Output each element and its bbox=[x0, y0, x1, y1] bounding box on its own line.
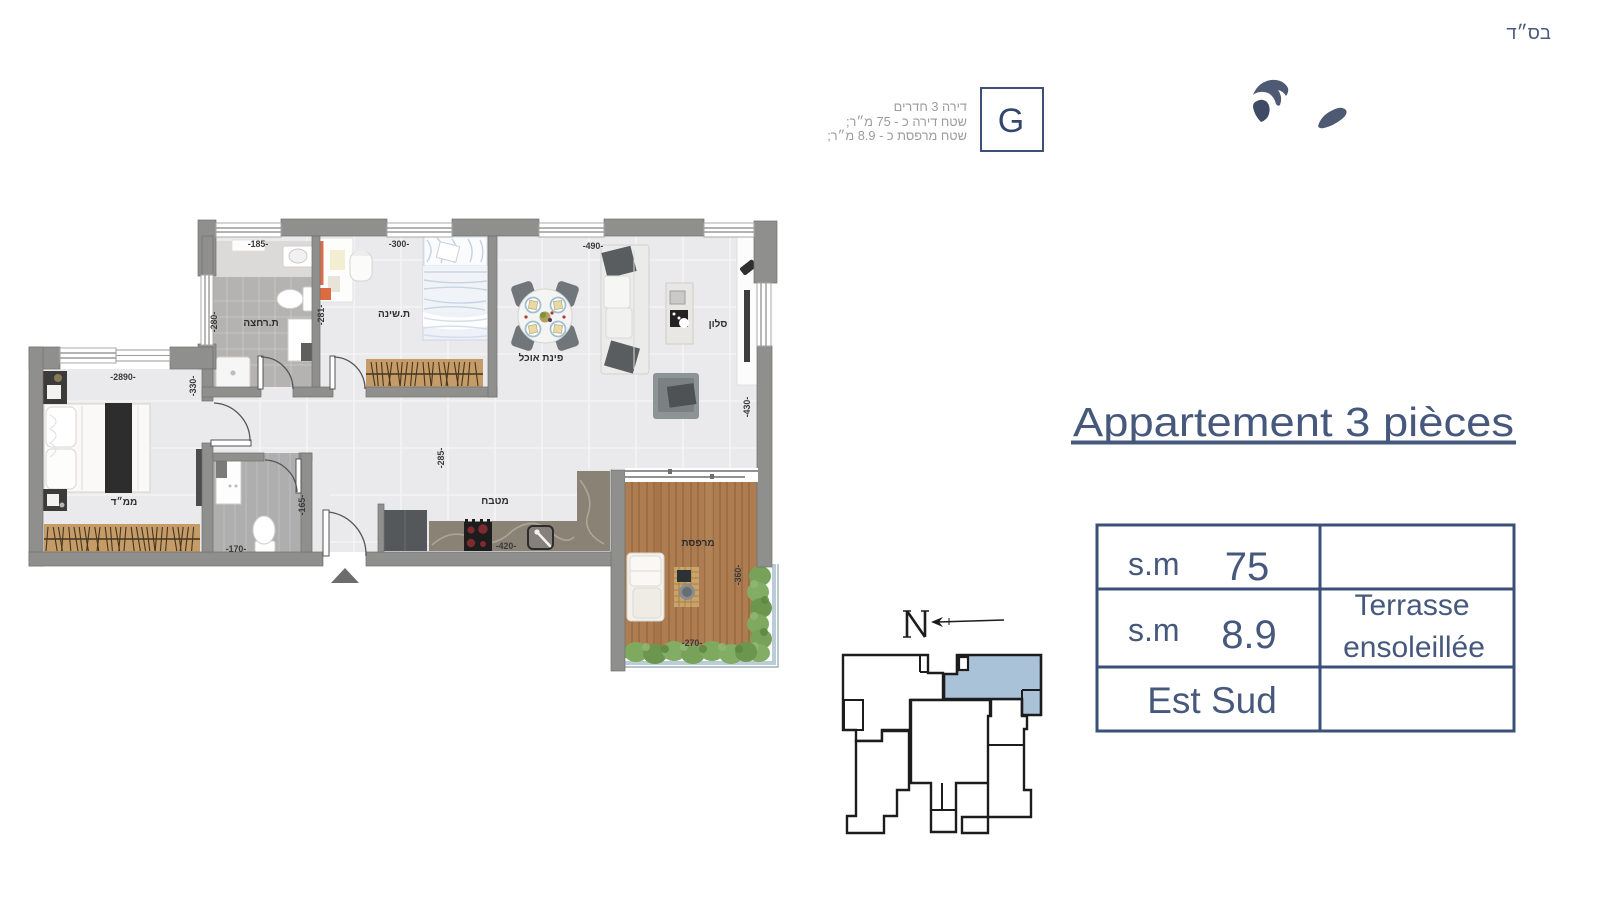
svg-text:-430-: -430- bbox=[742, 397, 752, 418]
svg-text:Est Sud: Est Sud bbox=[1147, 680, 1277, 721]
svg-text:שטח מרפסת כ - 8.9 מ״ר;: שטח מרפסת כ - 8.9 מ״ר; bbox=[827, 128, 967, 143]
svg-text:-270-: -270- bbox=[682, 638, 703, 648]
svg-text:-420-: -420- bbox=[496, 541, 517, 551]
svg-text:מטבח: מטבח bbox=[481, 496, 509, 507]
svg-text:-490-: -490- bbox=[583, 241, 604, 251]
svg-text:סלון: סלון bbox=[709, 318, 728, 330]
svg-text:ת.שינה: ת.שינה bbox=[378, 309, 410, 320]
svg-text:ממ״ד: ממ״ד bbox=[111, 496, 138, 508]
svg-text:-170-: -170- bbox=[226, 544, 247, 554]
svg-text:-185-: -185- bbox=[248, 239, 269, 249]
svg-text:שטח דירה כ - 75 מ״ר;: שטח דירה כ - 75 מ״ר; bbox=[846, 114, 967, 129]
svg-text:s.m: s.m bbox=[1128, 546, 1180, 582]
svg-text:-281-: -281- bbox=[316, 305, 326, 326]
svg-text:דירה 3 חדרים: דירה 3 חדרים bbox=[894, 99, 967, 114]
svg-text:G: G bbox=[998, 102, 1024, 140]
svg-text:פינת אוכל: פינת אוכל bbox=[519, 352, 564, 364]
svg-text:-300-: -300- bbox=[389, 239, 410, 249]
svg-text:75: 75 bbox=[1225, 545, 1270, 589]
svg-text:מרפסת: מרפסת bbox=[681, 538, 714, 549]
svg-text:-280-: -280- bbox=[209, 312, 219, 333]
svg-text:-330-: -330- bbox=[188, 376, 198, 397]
svg-text:s.m: s.m bbox=[1128, 612, 1180, 648]
svg-text:ensoleillée: ensoleillée bbox=[1343, 631, 1485, 664]
svg-text:8.9: 8.9 bbox=[1221, 613, 1277, 657]
svg-text:ת.רחצה: ת.רחצה bbox=[243, 318, 278, 329]
svg-text:בס״ד: בס״ד bbox=[1506, 22, 1551, 43]
svg-text:-360-: -360- bbox=[733, 565, 743, 586]
svg-text:-165-: -165- bbox=[297, 495, 307, 516]
svg-text:-285-: -285- bbox=[436, 448, 446, 469]
svg-text:Appartement 3 pièces: Appartement 3 pièces bbox=[1073, 399, 1514, 445]
svg-text:Terrasse: Terrasse bbox=[1354, 589, 1469, 622]
svg-text:-2890-: -2890- bbox=[110, 372, 135, 382]
